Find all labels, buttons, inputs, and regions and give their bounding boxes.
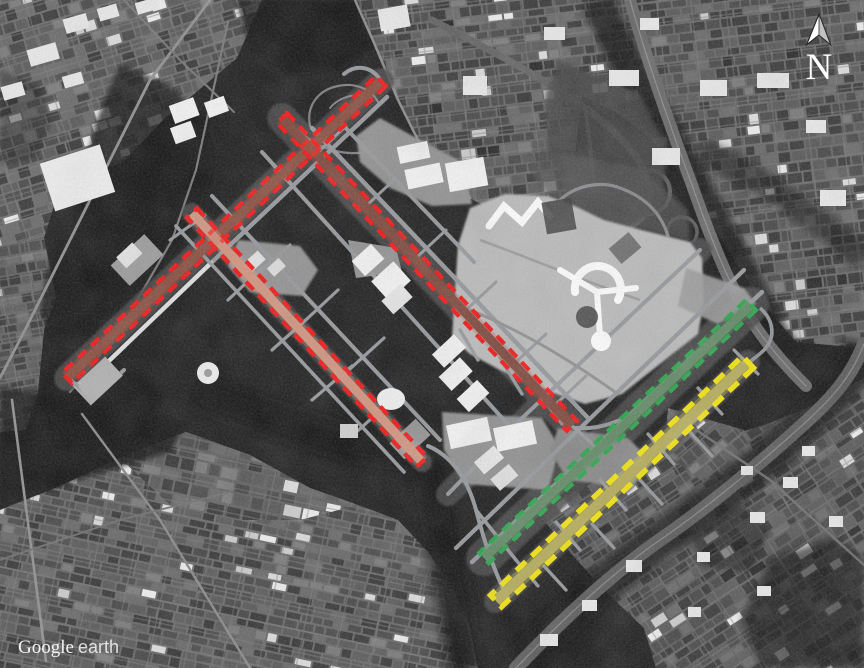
svg-text:Google: Google	[18, 637, 74, 658]
svg-text:earth: earth	[78, 637, 119, 657]
svg-text:N: N	[806, 47, 833, 88]
